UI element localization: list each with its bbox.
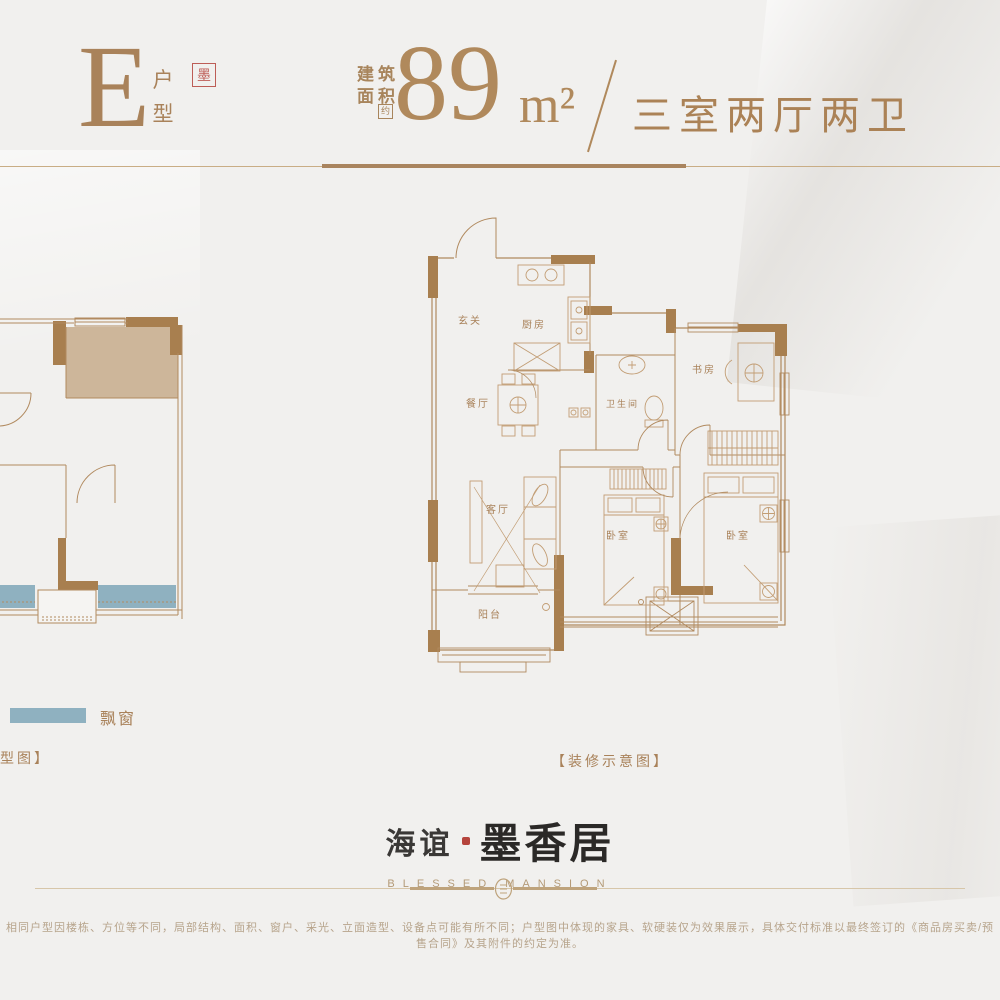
bay-window-swatch	[10, 708, 86, 723]
unit-letter: E	[78, 28, 150, 146]
brand-name-left: 海谊	[385, 819, 453, 863]
room-label-living: 客厅	[486, 503, 510, 516]
area-prefix-line1: 建筑	[357, 65, 399, 84]
room-label-bedroom1: 卧室	[606, 529, 630, 542]
footer-divider-thick-left	[410, 887, 494, 890]
divider-slash	[587, 60, 617, 152]
main-floor-plan: 玄关 厨房 餐厅 卫生间 书房 客厅 卧室 卧室 阳台	[408, 205, 793, 680]
room-label-entry: 玄关	[458, 314, 482, 327]
brand-name-right: 墨香居	[479, 810, 614, 871]
room-label-kitchen: 厨房	[522, 318, 546, 331]
disclaimer-text: 相同户型因楼栋、方位等不同，局部结构、面积、窗户、采光、立面造型、设备点可能有所…	[0, 919, 1000, 951]
brand-seal-dot-icon	[462, 837, 470, 845]
caption-main-plan: 【装修示意图】	[551, 751, 670, 771]
bay-window-label: 飘窗	[100, 705, 136, 729]
footer-ornament-icon	[494, 878, 513, 900]
approx-badge: 约	[378, 104, 393, 119]
room-label-bedroom2: 卧室	[726, 529, 750, 542]
main-plan-door-arcs	[508, 370, 728, 540]
unit-type-label: 户型	[151, 64, 175, 132]
main-plan-walls	[428, 255, 787, 652]
left-unit-plan	[0, 305, 190, 650]
entry-door-arc	[456, 218, 496, 258]
layout-description: 三室两厅两卫	[632, 94, 914, 138]
footer-divider-thick-right	[513, 887, 597, 890]
area-value: 89	[394, 30, 502, 138]
main-plan-furniture	[470, 265, 778, 611]
header-rule-thick	[322, 164, 686, 168]
left-plan-fills	[0, 327, 178, 608]
room-label-dining: 餐厅	[466, 397, 490, 410]
area-prefix: 建筑面积	[357, 64, 399, 108]
room-label-balcony: 阳台	[478, 608, 502, 621]
room-label-study: 书房	[692, 363, 716, 376]
area-unit: m²	[519, 80, 575, 132]
caption-left-plan: 型图】	[0, 748, 51, 768]
room-label-bathroom: 卫生间	[606, 398, 639, 409]
red-seal-icon: 墨	[192, 63, 216, 87]
